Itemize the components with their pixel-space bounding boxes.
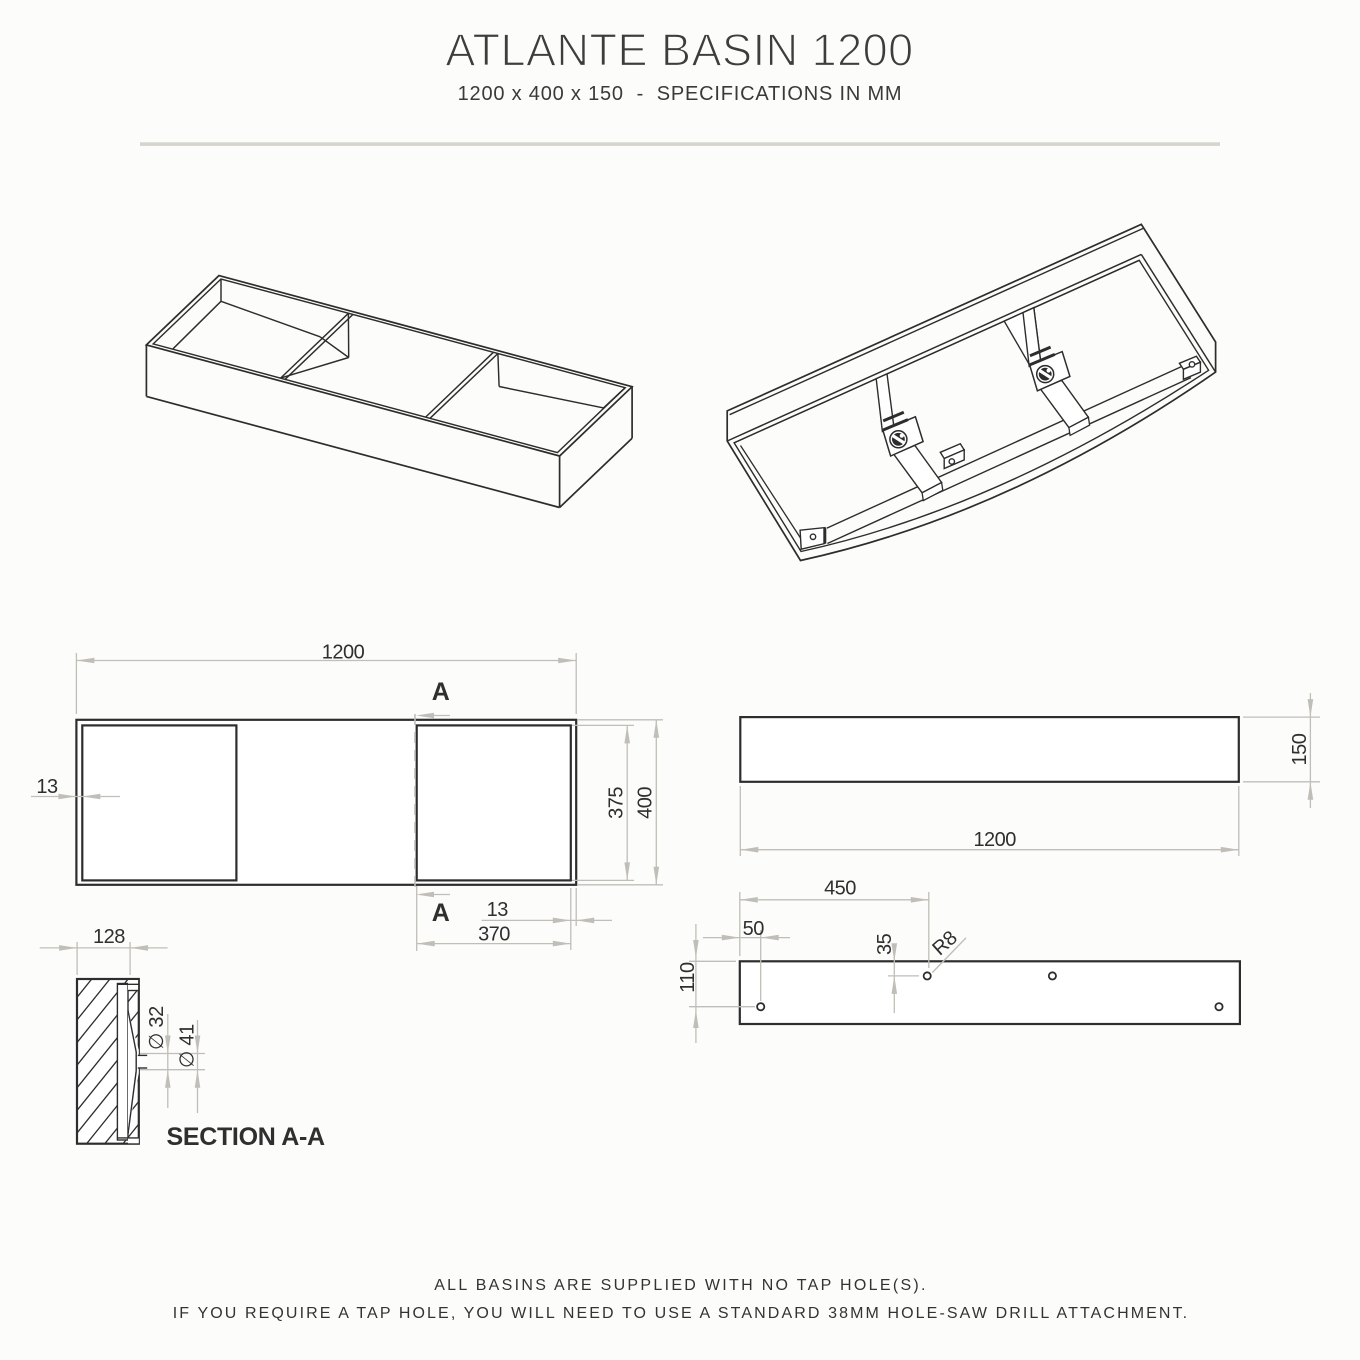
svg-text:∅ 41: ∅ 41	[177, 1024, 199, 1068]
svg-text:1200: 1200	[973, 829, 1016, 851]
svg-text:1200 x 400 x 150 - SPECIFICA: 1200 x 400 x 150 - SPECIFICATIONS IN MM	[458, 83, 903, 105]
svg-text:A: A	[432, 678, 451, 706]
svg-text:13: 13	[36, 776, 58, 798]
svg-text:A: A	[432, 899, 451, 927]
svg-text:375: 375	[606, 787, 628, 819]
svg-text:370: 370	[478, 924, 510, 946]
svg-text:ALL BASINS ARE SUPPLIED WITH N: ALL BASINS ARE SUPPLIED WITH NO TAP HOLE…	[434, 1277, 928, 1294]
svg-text:128: 128	[93, 926, 125, 948]
svg-text:R8: R8	[928, 927, 961, 960]
svg-text:SECTION A-A: SECTION A-A	[166, 1123, 325, 1151]
svg-text:110: 110	[677, 962, 699, 993]
svg-text:ATLANTE BASIN 1200: ATLANTE BASIN 1200	[445, 25, 913, 76]
svg-text:450: 450	[824, 878, 856, 900]
svg-text:400: 400	[635, 787, 657, 819]
svg-text:150: 150	[1289, 733, 1311, 765]
svg-text:50: 50	[743, 918, 765, 940]
svg-text:1200: 1200	[322, 642, 365, 664]
svg-text:∅ 32: ∅ 32	[146, 1006, 168, 1050]
svg-text:35: 35	[874, 933, 896, 955]
svg-text:IF YOU REQUIRE A TAP HOLE, YOU: IF YOU REQUIRE A TAP HOLE, YOU WILL NEED…	[173, 1305, 1189, 1322]
svg-text:13: 13	[487, 899, 509, 921]
